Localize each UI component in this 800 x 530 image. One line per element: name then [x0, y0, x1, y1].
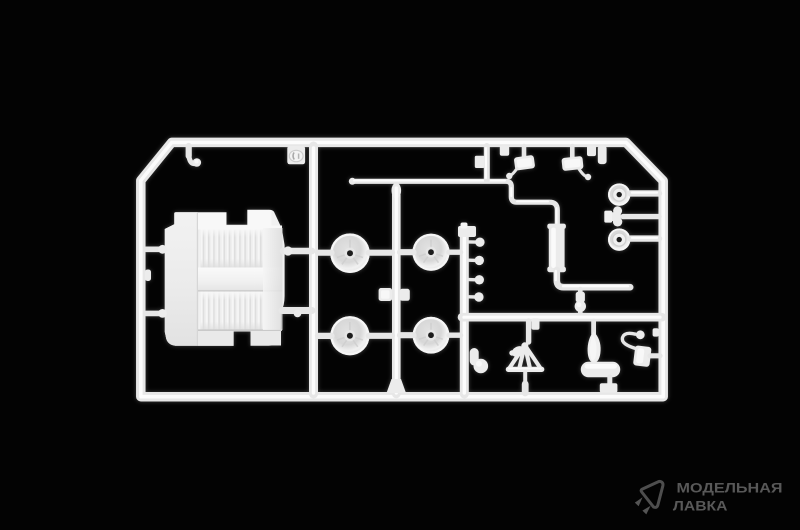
svg-text:ЛАВКА: ЛАВКА [673, 499, 728, 515]
svg-text:МОДЕЛЬНАЯ: МОДЕЛЬНАЯ [677, 481, 783, 497]
